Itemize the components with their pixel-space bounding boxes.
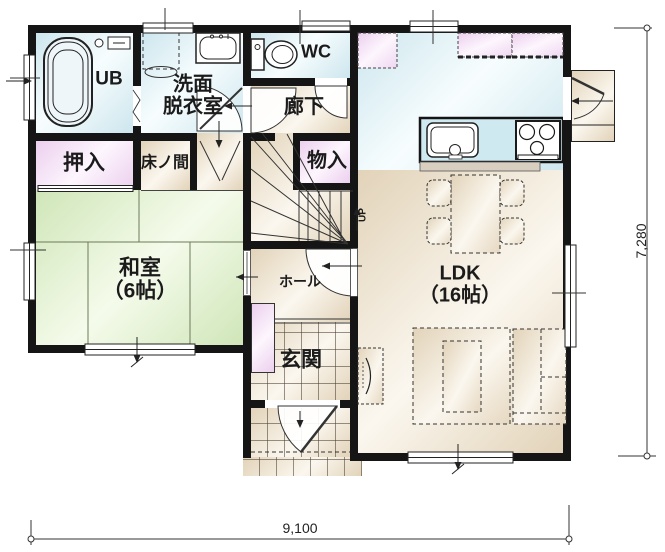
washing-machine-icon — [143, 33, 179, 78]
wc-door-opening — [315, 78, 347, 86]
dimension-height-label: 7,280 — [633, 223, 649, 258]
stove-icon — [516, 121, 560, 160]
rug — [413, 328, 510, 424]
room-label-washitsu: 和室 （6帖） — [103, 257, 178, 302]
dimension-width-label: 9,100 — [282, 520, 317, 536]
room-label-ub: UB — [95, 70, 122, 91]
stairs-up-label: UP — [359, 208, 370, 222]
refrigerator-icon — [358, 33, 397, 68]
entrance-step-lines — [275, 319, 350, 323]
window — [410, 21, 458, 32]
ub-counter-icon — [95, 37, 130, 49]
hall-ldk-door-leaf — [351, 249, 358, 297]
floor-plan: UB 洗面 脱衣室 WC 廊下 押入 床ノ間 物入 和室 （6帖） ホール 玄関… — [0, 0, 665, 552]
room-label-washroom: 洗面 脱衣室 — [163, 74, 223, 117]
window — [408, 452, 513, 463]
tv-stand — [358, 348, 383, 404]
room-label-hall: ホール — [279, 274, 321, 289]
window — [302, 21, 350, 31]
kitchen-counter — [420, 118, 563, 171]
dining-chair — [500, 180, 524, 206]
room-label-tokonoma: 床ノ間 — [141, 154, 189, 171]
kitchen-sink-icon — [427, 123, 478, 159]
bathtub-icon — [44, 38, 92, 126]
room-label-corridor: 廊下 — [284, 97, 324, 119]
room-label-wc: WC — [301, 42, 331, 61]
dining-table — [451, 175, 500, 253]
room-label-closet: 押入 — [63, 153, 105, 176]
backdoor-leaf — [572, 78, 604, 94]
closet-sliding-doors — [38, 186, 133, 192]
dining-chair — [500, 218, 524, 244]
room-label-entrance: 玄関 — [280, 350, 322, 373]
room-label-storage: 物入 — [307, 151, 347, 173]
window — [85, 344, 195, 355]
room-label-ldk: LDK （16帖） — [419, 263, 501, 306]
backdoor-opening — [563, 77, 571, 120]
window — [24, 55, 35, 120]
living-table — [443, 341, 481, 412]
toilet-icon — [251, 39, 297, 70]
folding-door — [200, 141, 240, 181]
window — [143, 23, 193, 33]
vanity-sink-icon — [196, 33, 240, 63]
window — [565, 245, 576, 347]
window — [24, 243, 35, 300]
dining-chair — [427, 180, 451, 206]
sofa — [513, 329, 566, 424]
kitchen-cabinet — [512, 33, 563, 57]
dining-chair — [427, 218, 451, 244]
kitchen-cabinet — [458, 33, 512, 57]
